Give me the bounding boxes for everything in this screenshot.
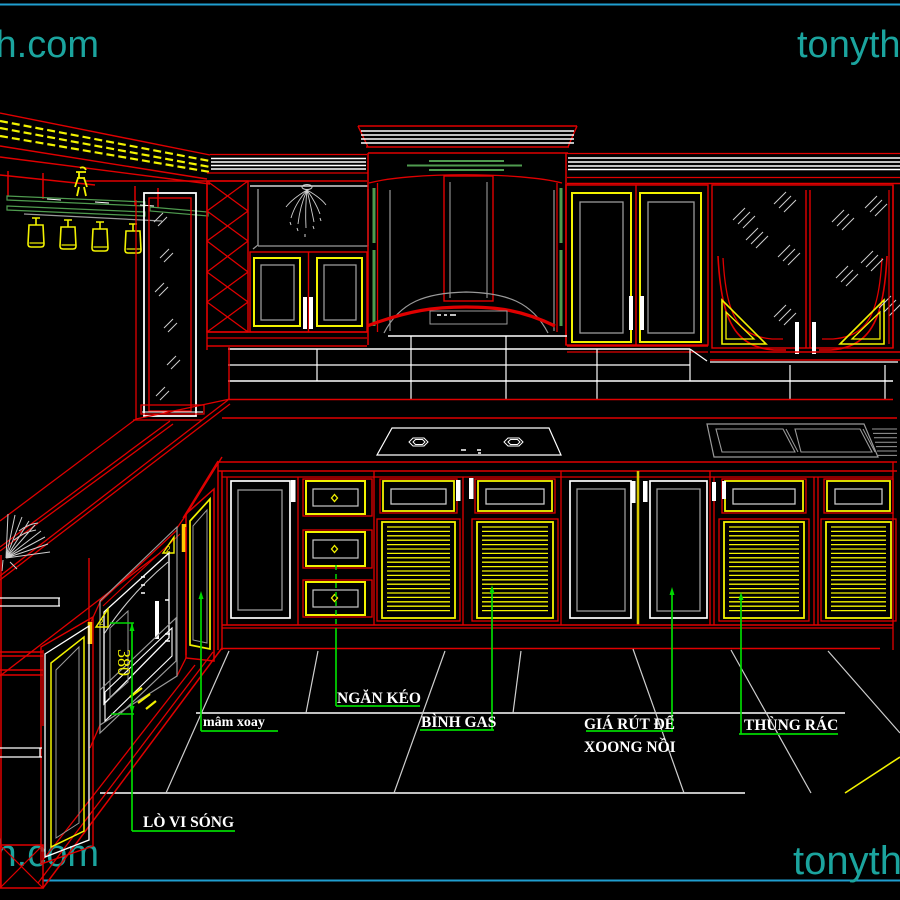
svg-text:tonythanh.com: tonythanh.com: [793, 839, 900, 883]
svg-text:BÌNH GAS: BÌNH GAS: [421, 714, 496, 731]
svg-text:380: 380: [114, 649, 134, 676]
svg-text:THÙNG RÁC: THÙNG RÁC: [744, 717, 838, 734]
svg-text:tonythanh.com: tonythanh.com: [0, 24, 99, 66]
svg-text:NGĂN KÉO: NGĂN KÉO: [337, 690, 421, 707]
svg-text:LÒ VI SÓNG: LÒ VI SÓNG: [143, 814, 234, 831]
svg-text:2: 2: [99, 618, 104, 627]
svg-text:GIÁ RÚT ĐỂ: GIÁ RÚT ĐỂ: [584, 715, 675, 733]
svg-text:mâm xoay: mâm xoay: [203, 715, 265, 730]
svg-text:tonythanh.com: tonythanh.com: [797, 24, 900, 66]
svg-text:XOONG NỒI: XOONG NỒI: [584, 738, 676, 756]
